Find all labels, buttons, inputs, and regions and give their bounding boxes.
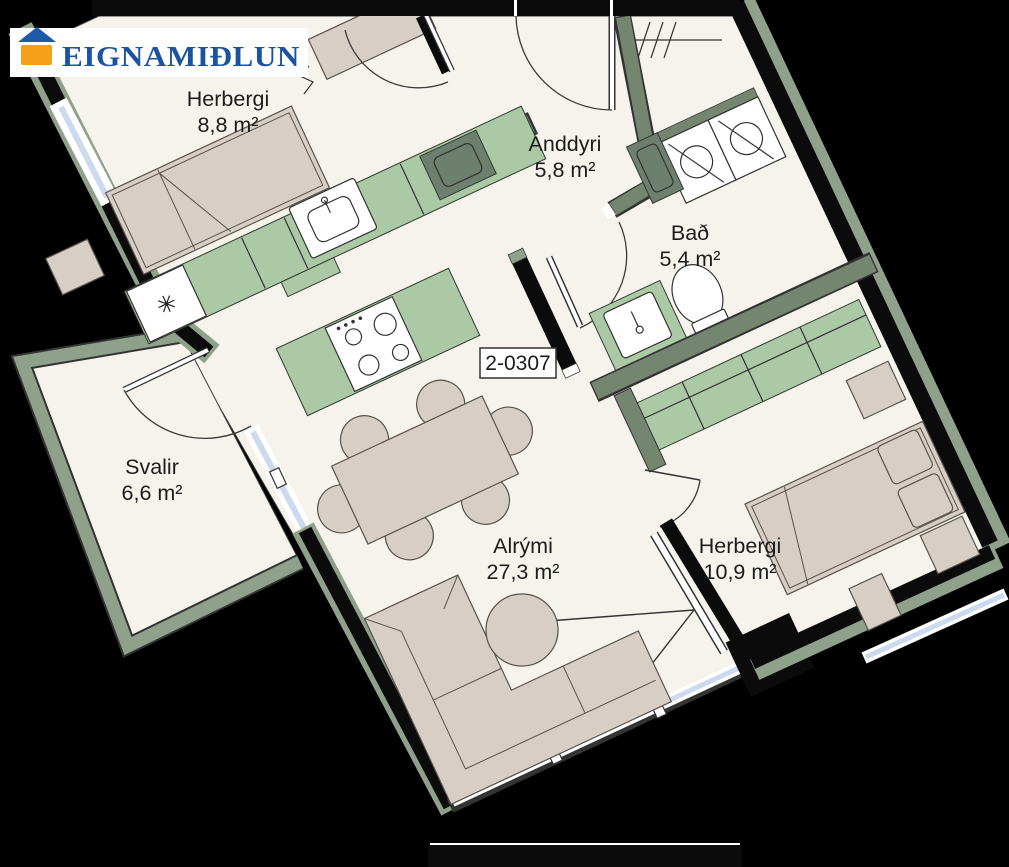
round-rug-icon [486, 594, 558, 666]
room-name: Alrými [493, 534, 553, 558]
neighbor-wall-bar [428, 844, 742, 867]
house-body-icon [21, 45, 52, 65]
room-name: Anddyri [529, 132, 602, 156]
room-area: 5,4 m² [660, 247, 721, 271]
room-area: 10,9 m² [704, 560, 777, 584]
room-area: 6,6 m² [122, 481, 183, 505]
room-area: 27,3 m² [487, 560, 560, 584]
top-exterior-wall [92, 0, 740, 16]
room-area: 8,8 m² [198, 113, 259, 137]
door-jamb [610, 0, 613, 16]
room-name: Herbergi [699, 534, 781, 558]
room-name: Svalir [125, 455, 179, 479]
room-name: Bað [671, 221, 709, 245]
room-area: 5,8 m² [535, 158, 596, 182]
floorplan-page: ✳ [0, 0, 1009, 867]
room-name: Herbergi [187, 87, 269, 111]
door-jamb [514, 0, 517, 16]
floorplan-drawing: ✳ [0, 0, 1009, 867]
unit-number-badge: 2-0307 [480, 348, 556, 378]
nightstand-icon [46, 239, 105, 295]
brand-logo: EIGNAMIÐLUN [10, 27, 308, 77]
wall-cap [605, 206, 612, 217]
unit-number: 2-0307 [485, 352, 550, 375]
logo-wordmark: EIGNAMIÐLUN [62, 42, 300, 73]
